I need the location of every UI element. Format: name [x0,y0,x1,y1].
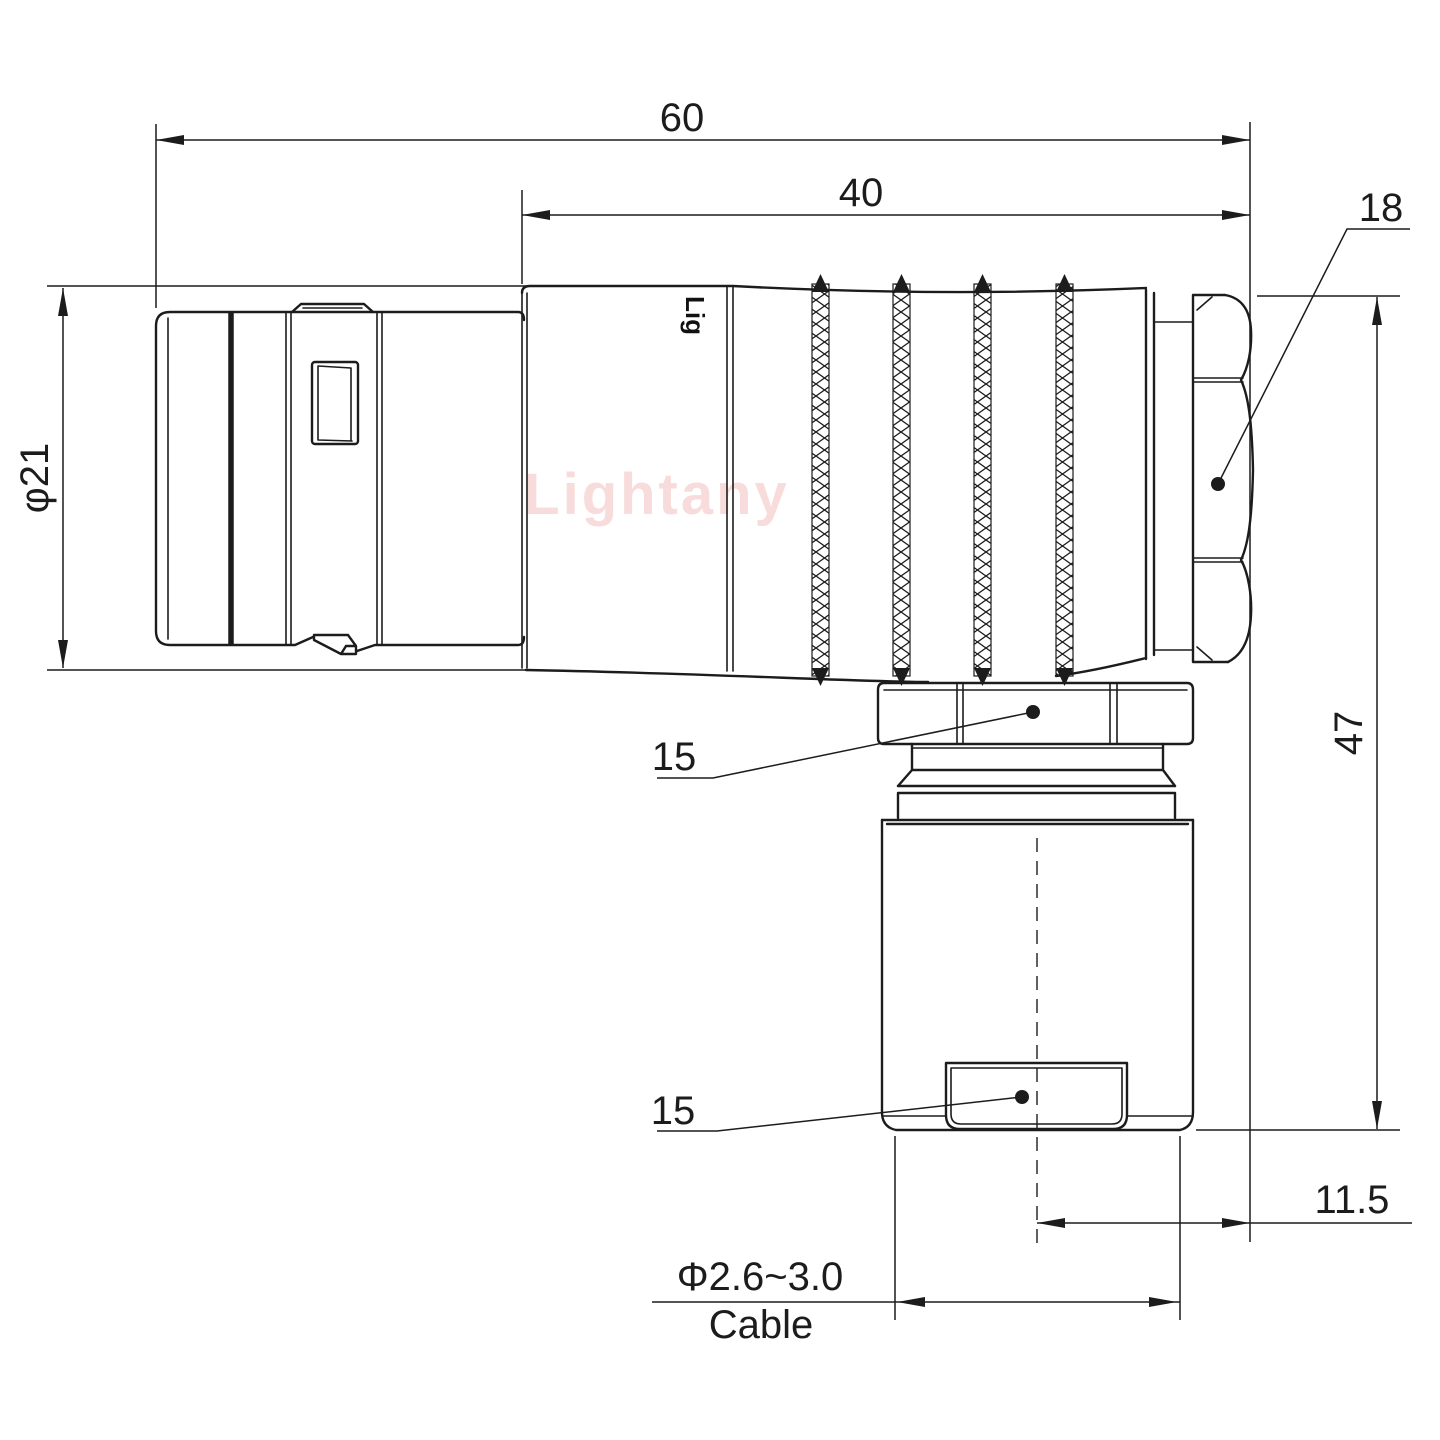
sleeve-ring-line-2 [377,312,382,645]
dimension-overall-length: 60 [156,96,1250,1242]
rear-body-bottom-edge [526,658,1146,682]
knurl-bands [812,274,1073,686]
dimension-rear-length: 40 [522,171,1250,284]
dim-shell-diameter-label: φ21 [13,443,57,513]
elbow-assembly [878,683,1193,1245]
knurl-band [893,274,910,686]
knurl-band [974,274,991,686]
dim-elbow-nut-label: 15 [652,735,697,779]
body-brand-mark: Lig [680,296,710,335]
rear-neck [1154,322,1193,650]
technical-drawing-page: Lightany Lig [0,0,1440,1440]
rear-body-top-edge [522,286,1146,293]
dimension-shell-diameter: φ21 [13,286,532,670]
dimension-total-height: 47 [1196,296,1400,1130]
dim-side-offset-label: 11.5 [1315,1178,1390,1222]
dimension-side-offset: 11.5 [1037,1178,1412,1228]
dim-rear-length-label: 40 [839,171,884,215]
latch-tab [314,635,356,654]
dimension-cable: Φ2.6~3.0 Cable [652,1136,1180,1347]
dim-total-height-label: 47 [1327,711,1371,756]
watermark-text: Lightany [524,462,790,527]
rear-nut-corner-chamfers [1197,297,1212,660]
rear-nut-flat-lines [1193,378,1243,562]
rear-nut-group [1154,295,1253,662]
sleeve-ring-line-1 [286,312,291,645]
rear-body-right-end [1146,290,1154,659]
leader-elbow-nut: 15 [652,705,1040,779]
dim-cable-diameter-label: Φ2.6~3.0 [677,1255,843,1299]
latch-window [312,362,358,444]
rear-nut-face-edges [1193,295,1228,662]
elbow-steps [882,744,1193,824]
leader-cable-nut: 15 [651,1089,1029,1133]
dim-cable-nut-label: 15 [651,1089,696,1133]
knurl-band [1056,274,1073,686]
dim-cable-word-label: Cable [709,1303,814,1347]
front-release-sleeve [156,304,524,654]
dim-rear-nut-label: 18 [1359,186,1404,230]
leader-rear-nut: 18 [1211,186,1410,491]
knurl-band [812,274,829,686]
rear-nut-scalloped-profile [1225,295,1253,662]
connector-technical-drawing: Lightany Lig [0,0,1440,1440]
dim-overall-length-label: 60 [660,96,705,140]
